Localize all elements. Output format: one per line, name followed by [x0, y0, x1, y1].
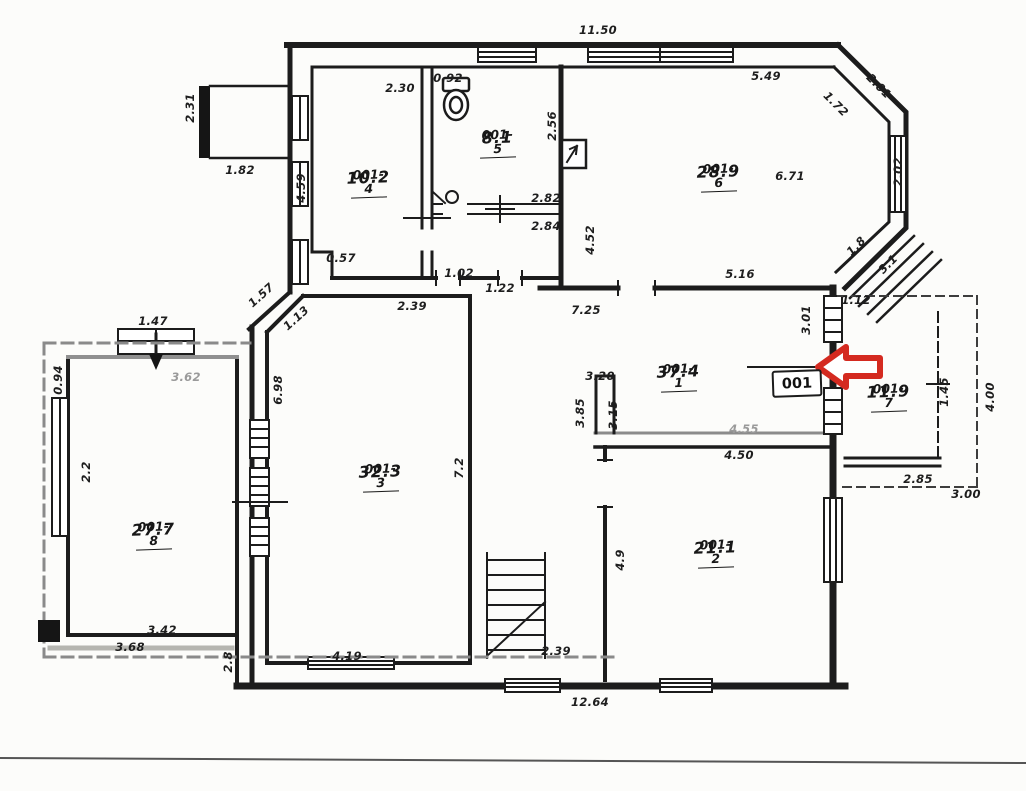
- dimension-label: 7.2: [452, 457, 466, 478]
- dimension-label: 1.45: [937, 377, 951, 407]
- porch-walls: [199, 86, 290, 158]
- dimension-label: 4.50: [724, 448, 754, 462]
- dimension-label: 2.39: [541, 644, 571, 658]
- radiator-icon: [562, 140, 586, 168]
- dimension-label: 6.71: [775, 169, 805, 183]
- dimension-label: 4.59: [294, 173, 308, 203]
- dimension-label: 1.47: [138, 314, 168, 328]
- dimension-label: 2.8: [221, 651, 235, 672]
- dimension-label: 5.16: [725, 267, 755, 281]
- dimension-label: 3.15: [606, 400, 620, 430]
- room-area: 28.9: [696, 161, 740, 182]
- dimension-label: 5.49: [751, 69, 781, 83]
- room-area: 8.1: [481, 127, 513, 147]
- dimension-label: 6.98: [271, 375, 285, 405]
- room-area: 21.1: [693, 537, 737, 558]
- dimension-label: 2.2: [79, 461, 93, 482]
- dimension-label: 2.84: [531, 219, 561, 233]
- dimension-label: 12.64: [571, 695, 609, 709]
- dimension-label: 2.56: [545, 111, 559, 141]
- stairs-icon: [487, 553, 545, 658]
- dashed-boundary-left: [44, 343, 616, 657]
- dimension-label: 4.52: [583, 225, 597, 255]
- dimension-label: 0.92: [433, 71, 463, 85]
- room-area: 27.7: [131, 519, 175, 540]
- corner-block: [38, 620, 60, 642]
- dimension-label: 4.00: [983, 382, 997, 412]
- dimension-label: 1.22: [485, 281, 515, 295]
- scan-artifact-line: [0, 758, 1026, 763]
- dimension-label: 3.62: [171, 370, 201, 384]
- room-area: 10.2: [346, 167, 390, 188]
- dimension-label: 4.55: [729, 422, 759, 436]
- dimension-label: 3.01: [799, 305, 813, 335]
- dimension-label: 4.19: [332, 649, 362, 663]
- dimension-label: 7.25: [571, 303, 601, 317]
- dimension-label: 1.12: [841, 293, 871, 307]
- dimension-label: 3.85: [573, 398, 587, 428]
- dimension-label: 2.39: [397, 299, 427, 313]
- dimension-label: 2.31: [183, 93, 197, 123]
- dimension-label: 0.57: [326, 251, 356, 265]
- dimension-label: 2.85: [903, 472, 933, 486]
- room-area: 32.3: [358, 461, 402, 482]
- dimension-label: 3.68: [115, 640, 145, 654]
- dimension-label: 1.82: [225, 163, 255, 177]
- dimension-label: 0.94: [51, 365, 65, 395]
- dimension-label: 3.20: [585, 369, 615, 383]
- dimension-label: 3.00: [951, 487, 981, 501]
- floor-plan: 001 11.502.311.824.592.300.922.562.822.8…: [0, 0, 1026, 791]
- door-handle-icon: [433, 191, 458, 203]
- room-001-tag: 001: [772, 369, 823, 398]
- dimension-label: 3.42: [147, 623, 177, 637]
- dimension-label: 1.02: [444, 266, 474, 280]
- dimension-label: 2.30: [385, 81, 415, 95]
- dimension-label: 2.02: [891, 157, 905, 187]
- room-area: 37.4: [656, 361, 700, 382]
- room-area: 11.9: [866, 381, 910, 402]
- dimension-label: 4.9: [613, 549, 627, 570]
- dimension-label: 11.50: [579, 23, 617, 37]
- dimension-label: 2.82: [531, 191, 561, 205]
